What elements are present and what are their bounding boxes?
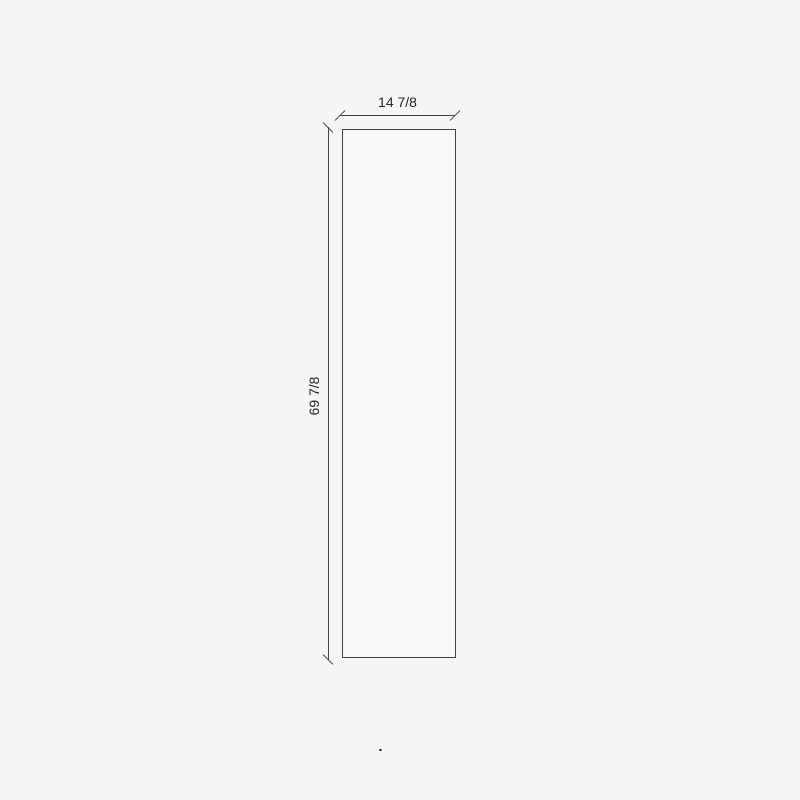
height-dimension-line bbox=[328, 127, 329, 660]
stray-dot bbox=[379, 749, 382, 751]
width-dimension-line bbox=[340, 115, 455, 116]
width-dimension-label: 14 7/8 bbox=[340, 94, 455, 111]
height-dimension-label: 69 7/8 bbox=[306, 377, 322, 416]
dimension-drawing: 14 7/8 69 7/8 bbox=[0, 0, 800, 800]
panel-outline bbox=[342, 129, 456, 658]
